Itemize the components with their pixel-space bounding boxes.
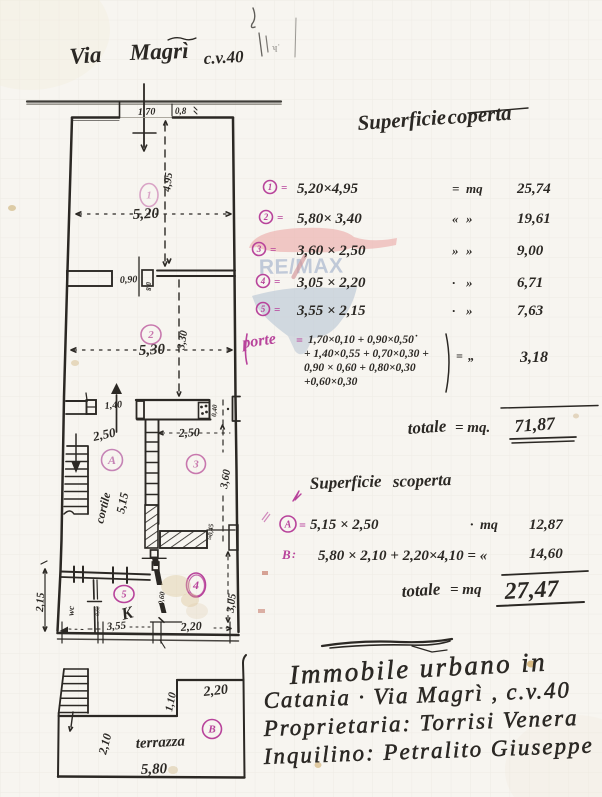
svg-text:5: 5 [261,304,266,314]
svg-text:1,70×0,10 + 0,90×0,50˙: 1,70×0,10 + 0,90×0,50˙ [308,334,418,346]
svg-text:terrazza: terrazza [135,733,185,752]
svg-text:0,90 × 0,60 + 0,80×0,30: 0,90 × 0,60 + 0,80×0,30 [304,362,416,374]
svg-text:»: » [465,243,473,258]
svg-text:»: » [451,243,459,258]
svg-text:2,20: 2,20 [202,682,229,700]
svg-text:3,05: 3,05 [224,592,238,614]
svg-text:Superficie: Superficie [309,471,382,493]
svg-text:c.v.40: c.v.40 [203,47,244,68]
svg-text:·: · [470,518,474,533]
svg-text:Magrì: Magrì [128,38,189,65]
svg-text:mq: mq [480,518,498,533]
svg-text:„: „ [468,348,475,363]
svg-text:=: = [296,333,303,347]
svg-text:12,87: 12,87 [529,517,563,533]
svg-text:ʮ˙: ʮ˙ [272,43,280,52]
svg-text:5,80× 3,40: 5,80× 3,40 [297,211,362,227]
svg-text:3: 3 [192,459,199,471]
svg-text:3: 3 [256,244,262,254]
svg-text:=: = [452,181,459,196]
svg-text:0,8: 0,8 [175,106,187,116]
svg-text:0,60: 0,60 [95,606,102,616]
svg-text:·: · [452,275,455,290]
svg-text:2,15: 2,15 [34,592,47,613]
svg-text:4,95: 4,95 [161,171,175,193]
svg-text:scoperta: scoperta [391,470,452,491]
svg-text:1: 1 [146,190,152,202]
svg-text:·: · [452,303,455,318]
svg-text:5,15 × 2,50: 5,15 × 2,50 [310,517,379,533]
svg-text:3,05 × 2,20: 3,05 × 2,20 [296,275,366,291]
svg-text:B: B [281,547,291,562]
svg-text:27,47: 27,47 [503,576,560,605]
svg-text:wc: wc [66,605,77,616]
svg-text:14,60: 14,60 [529,546,563,562]
svg-text:mq: mq [466,181,483,196]
svg-text:A: A [107,453,116,467]
svg-text:=: = [456,349,463,363]
svg-text:+0,60×0,30: +0,60×0,30 [304,376,358,388]
svg-text:3,55 × 2,15: 3,55 × 2,15 [296,303,366,319]
svg-text:≈0,45: ≈0,45 [206,523,215,540]
svg-text:= mq: = mq [450,582,482,598]
svg-text:«: « [452,211,459,226]
svg-text:5,20: 5,20 [132,206,160,223]
svg-text:+ 1,40×0,55 + 0,70×0,30 +: + 1,40×0,55 + 0,70×0,30 + [304,348,429,360]
svg-text::: : [292,547,296,561]
svg-text:= mq.: = mq. [455,420,490,436]
svg-text:9,00: 9,00 [517,243,544,259]
svg-text:5: 5 [122,589,127,600]
svg-text:71,87: 71,87 [514,413,557,436]
svg-text:=: = [270,244,276,256]
svg-text:0,40: 0,40 [210,404,219,417]
svg-text:=: = [277,212,283,224]
svg-text:totale: totale [401,579,441,601]
svg-text:1: 1 [268,182,273,192]
svg-text:3,55: 3,55 [105,620,127,633]
svg-text:2: 2 [147,329,154,341]
svg-text:totale: totale [407,416,447,438]
svg-text:19,61: 19,61 [517,211,551,227]
svg-text:=: = [274,276,280,288]
svg-text:=: = [281,182,287,194]
svg-text:2,20: 2,20 [179,619,202,635]
svg-text:B: B [207,724,215,736]
svg-text:5,20×4,95: 5,20×4,95 [297,181,359,197]
svg-text:3,18: 3,18 [519,349,548,366]
svg-text:1,40: 1,40 [104,399,123,412]
svg-text:0,8: 0,8 [144,282,152,291]
svg-text:1,70: 1,70 [138,106,156,118]
svg-text:0,90: 0,90 [120,274,138,286]
svg-text:»: » [465,211,473,226]
svg-text:=: = [274,304,280,316]
svg-text:2: 2 [263,212,269,222]
svg-text:=: = [299,518,306,532]
svg-text:A: A [284,519,292,530]
svg-text:3,60 × 2,50: 3,60 × 2,50 [296,243,366,259]
svg-text:»: » [465,275,473,290]
svg-text:0,60: 0,60 [156,591,167,605]
svg-text:7,63: 7,63 [517,303,544,319]
svg-text:2,50: 2,50 [177,425,200,440]
svg-text:Via: Via [69,42,103,69]
svg-text:4: 4 [260,276,266,286]
svg-text:4: 4 [192,578,199,592]
svg-text:5,80 × 2,10 + 2,20×4,10 = «: 5,80 × 2,10 + 2,20×4,10 = « [318,548,488,564]
svg-text:6,71: 6,71 [517,275,543,291]
svg-text:5,80: 5,80 [141,761,168,778]
svg-text:25,74: 25,74 [516,181,551,197]
svg-text:»: » [465,303,473,318]
svg-text:coperta: coperta [447,101,513,129]
